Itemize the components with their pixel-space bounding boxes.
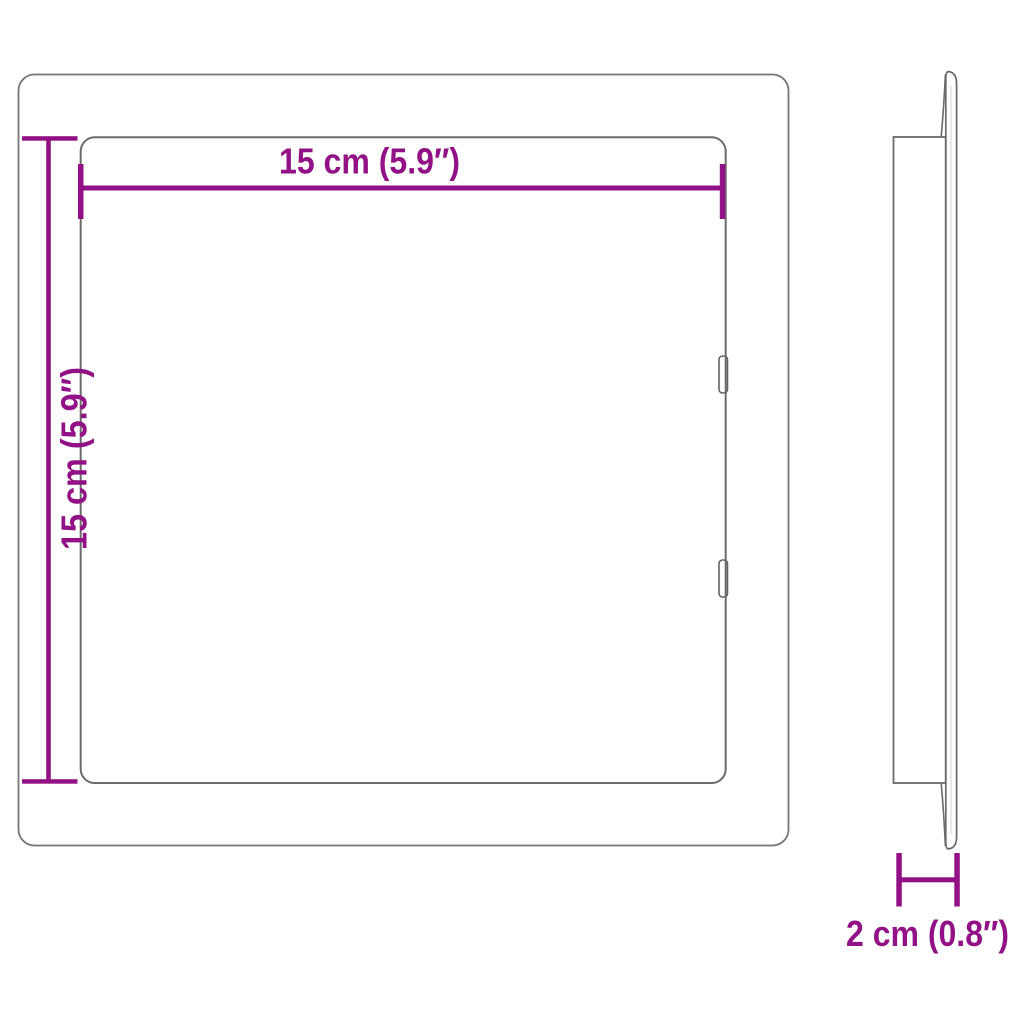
svg-text:15 cm (5.9″): 15 cm (5.9″) bbox=[53, 367, 94, 550]
svg-text:15 cm (5.9″): 15 cm (5.9″) bbox=[279, 141, 460, 182]
svg-text:2 cm (0.8″): 2 cm (0.8″) bbox=[846, 913, 1009, 954]
